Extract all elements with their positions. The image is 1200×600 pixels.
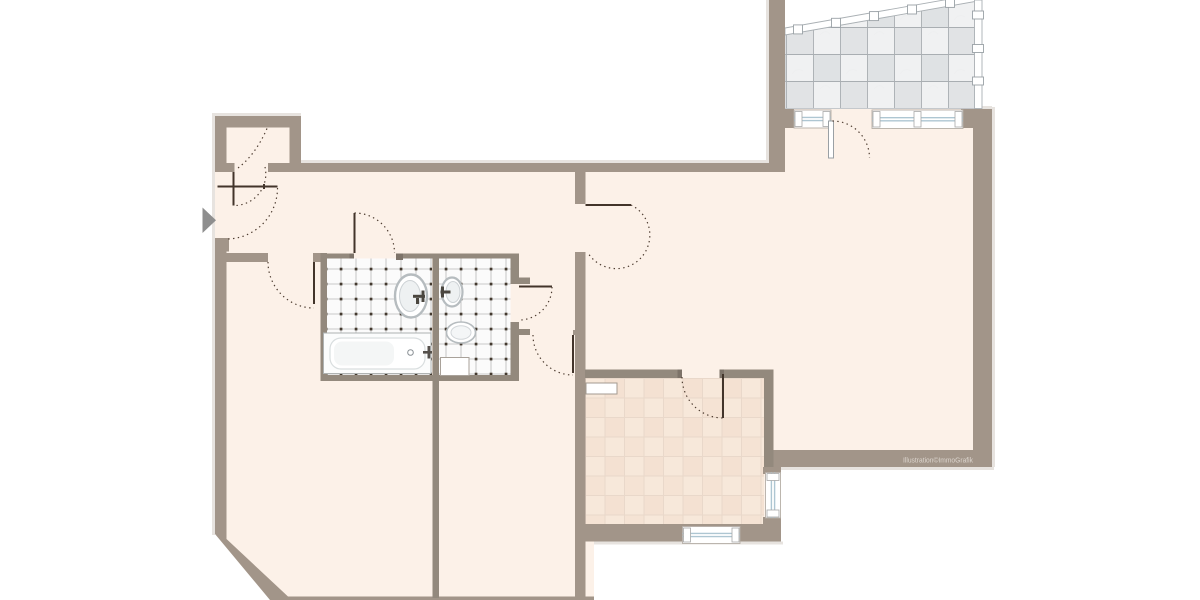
svg-text:Illustration©ImmoGrafik: Illustration©ImmoGrafik <box>903 456 973 465</box>
